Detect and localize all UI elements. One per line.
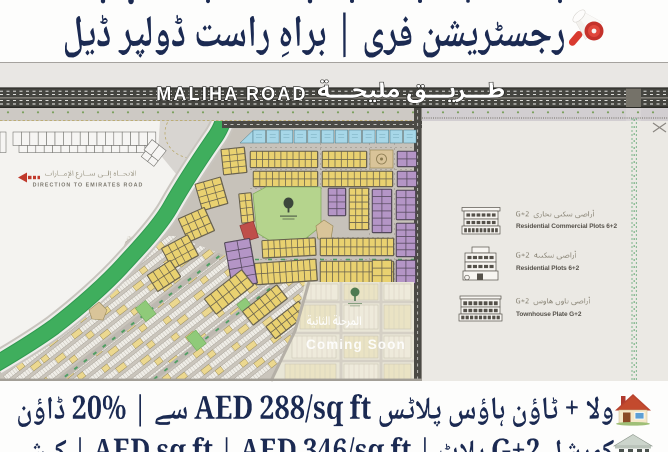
svg-text:Townhouse Plate G+2: Townhouse Plate G+2: [516, 311, 582, 318]
svg-text:Residential Plots 6+2: Residential Plots 6+2: [516, 265, 580, 272]
svg-text:DIRECTION TO EMIRATES ROAD: DIRECTION TO EMIRATES ROAD: [33, 183, 144, 189]
svg-text:Coming Soon: Coming Soon: [306, 337, 406, 352]
svg-text:MALIHA ROAD: MALIHA ROAD: [156, 84, 308, 104]
svg-text:Residential Commercial Plots 6: Residential Commercial Plots 6+2: [516, 223, 618, 230]
